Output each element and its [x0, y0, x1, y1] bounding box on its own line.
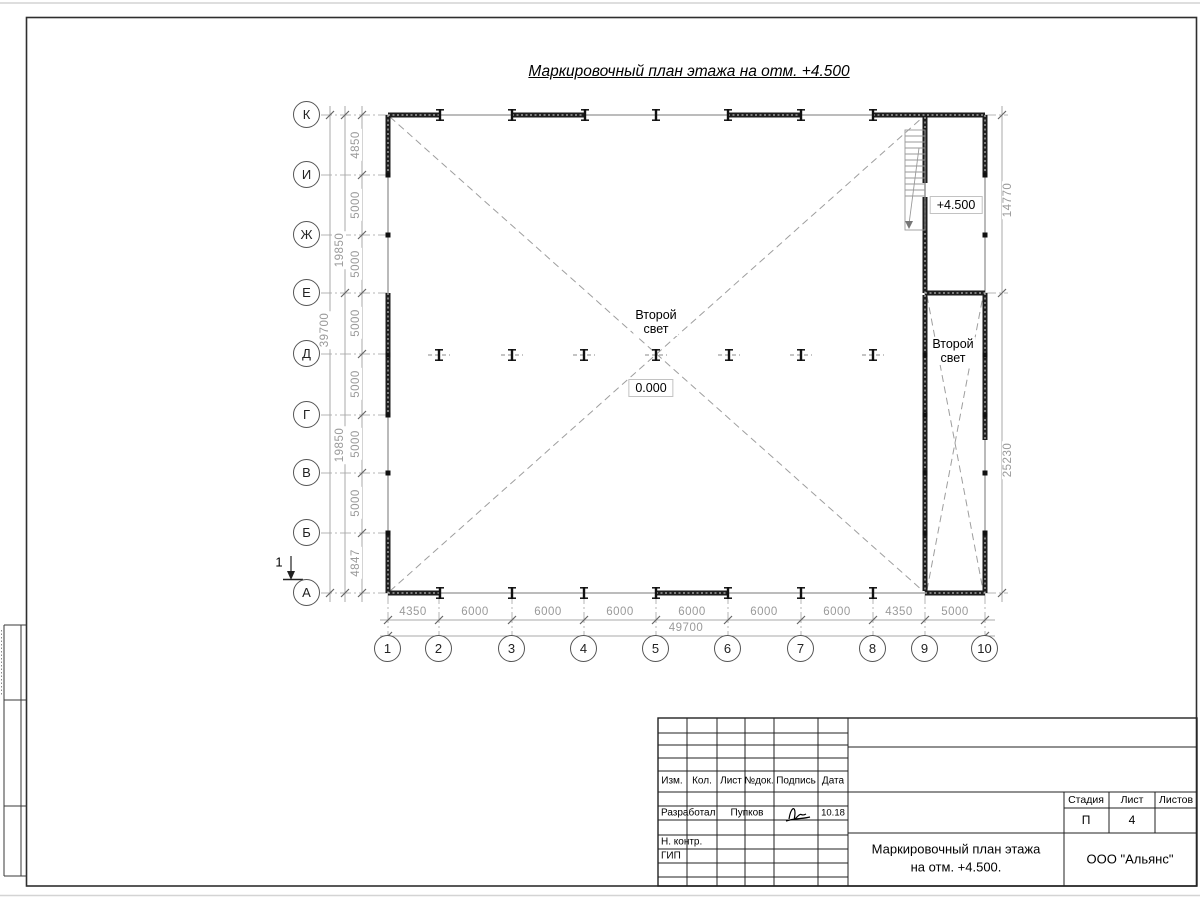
- thin-wall-lines: [388, 115, 985, 593]
- dim-label: 5000: [350, 307, 362, 339]
- tb-stage-value: П: [1082, 813, 1091, 827]
- dim-label: 4350: [397, 606, 429, 618]
- plan-linework: [0, 0, 1200, 900]
- axis-bubble-col-5: 5: [642, 635, 669, 662]
- tb-gip-label: ГИП: [661, 851, 681, 862]
- dim-label: 5000: [939, 606, 971, 618]
- tb-sheet-label: Лист: [1121, 794, 1144, 806]
- dim-label: 19850: [334, 426, 346, 464]
- tb-col-kol: Кол.: [692, 776, 712, 787]
- axis-bubble-row-e: Е: [293, 279, 320, 306]
- upper-level-label: +4.500: [930, 196, 983, 214]
- dim-label: 25230: [1002, 441, 1014, 479]
- stairs-icon: [905, 130, 925, 230]
- dim-label: 5000: [350, 248, 362, 280]
- axis-bubble-col-4: 4: [570, 635, 597, 662]
- dimension-lines: [330, 106, 1002, 636]
- dim-label: 5000: [350, 487, 362, 519]
- dim-label: 6000: [459, 606, 491, 618]
- dim-label-total: 49700: [667, 622, 705, 634]
- tb-col-podpis: Подпись: [776, 776, 816, 787]
- second-light-label-main: Второйсвет: [633, 308, 678, 336]
- axis-bubble-row-k: К: [293, 101, 320, 128]
- dim-label: 4847: [350, 547, 362, 579]
- tb-date: 10.18: [821, 808, 845, 819]
- frame-border: [27, 18, 1197, 887]
- plan-title: Маркировочный план этажа на отм. +4.500: [528, 63, 849, 81]
- tb-doc-title-line2: на отм. +4.500.: [911, 860, 1002, 875]
- axis-bubble-row-b: Б: [293, 519, 320, 546]
- axis-bubble-row-a: А: [293, 579, 320, 606]
- axis-bubble-col-9: 9: [911, 635, 938, 662]
- tb-stage-label: Стадия: [1068, 794, 1104, 806]
- section-mark-number: 1: [275, 555, 282, 570]
- dim-label: 6000: [604, 606, 636, 618]
- dim-label: 14770: [1002, 181, 1014, 219]
- zero-level-label: 0.000: [628, 379, 673, 397]
- tb-col-list: Лист: [720, 776, 742, 787]
- wall-hatch: [388, 115, 985, 593]
- tb-company: ООО "Альянс": [1087, 852, 1174, 867]
- dim-label: 19850: [334, 231, 346, 269]
- axis-bubble-row-v: В: [293, 459, 320, 486]
- tb-col-data: Дата: [822, 776, 844, 787]
- axis-bubble-row-g: Г: [293, 401, 320, 428]
- dimension-ticks: [326, 111, 1006, 640]
- tb-developed-label: Разработал: [661, 808, 715, 819]
- axis-bubble-row-i: И: [293, 161, 320, 188]
- axis-bubble-col-2: 2: [425, 635, 452, 662]
- axis-bubble-col-6: 6: [714, 635, 741, 662]
- dim-label: 5000: [350, 368, 362, 400]
- second-light-label-right: Второйсвет: [930, 337, 975, 365]
- column-markers-row-d: [428, 349, 884, 361]
- axis-bubble-col-7: 7: [787, 635, 814, 662]
- tb-sheets-label: Листов: [1159, 794, 1193, 806]
- axis-bubble-col-8: 8: [859, 635, 886, 662]
- dim-label: 6000: [532, 606, 564, 618]
- tb-col-izm: Изм.: [661, 776, 682, 787]
- axis-bubble-col-1: 1: [374, 635, 401, 662]
- tb-developed-name: Пупков: [731, 808, 764, 819]
- dim-label: 5000: [350, 428, 362, 460]
- axis-bubble-row-d: Д: [293, 340, 320, 367]
- dim-label: 39700: [319, 311, 331, 349]
- dim-label: 6000: [748, 606, 780, 618]
- paper-edges: [0, 3, 1200, 896]
- dim-label: 5000: [350, 189, 362, 221]
- signature-icon: [786, 809, 810, 821]
- axis-bubble-col-3: 3: [498, 635, 525, 662]
- walls: [386, 113, 988, 596]
- tb-sheet-value: 4: [1129, 813, 1136, 827]
- dim-label: 4350: [883, 606, 915, 618]
- column-markers-vertical-walls: [386, 173, 988, 536]
- tb-doc-title-line1: Маркировочный план этажа: [872, 842, 1041, 857]
- dim-label: 6000: [676, 606, 708, 618]
- drawing-sheet: Маркировочный план этажа на отм. +4.500 …: [0, 0, 1200, 900]
- section-arrow-icon: [283, 556, 303, 580]
- axis-bubble-col-10: 10: [971, 635, 998, 662]
- left-margin-strip: [2, 625, 27, 876]
- dim-label: 6000: [821, 606, 853, 618]
- tb-ncontrol-label: Н. контр.: [661, 837, 702, 848]
- tb-col-ndok: №док.: [744, 776, 773, 787]
- dim-label: 4850: [350, 129, 362, 161]
- axis-bubble-row-zh: Ж: [293, 221, 320, 248]
